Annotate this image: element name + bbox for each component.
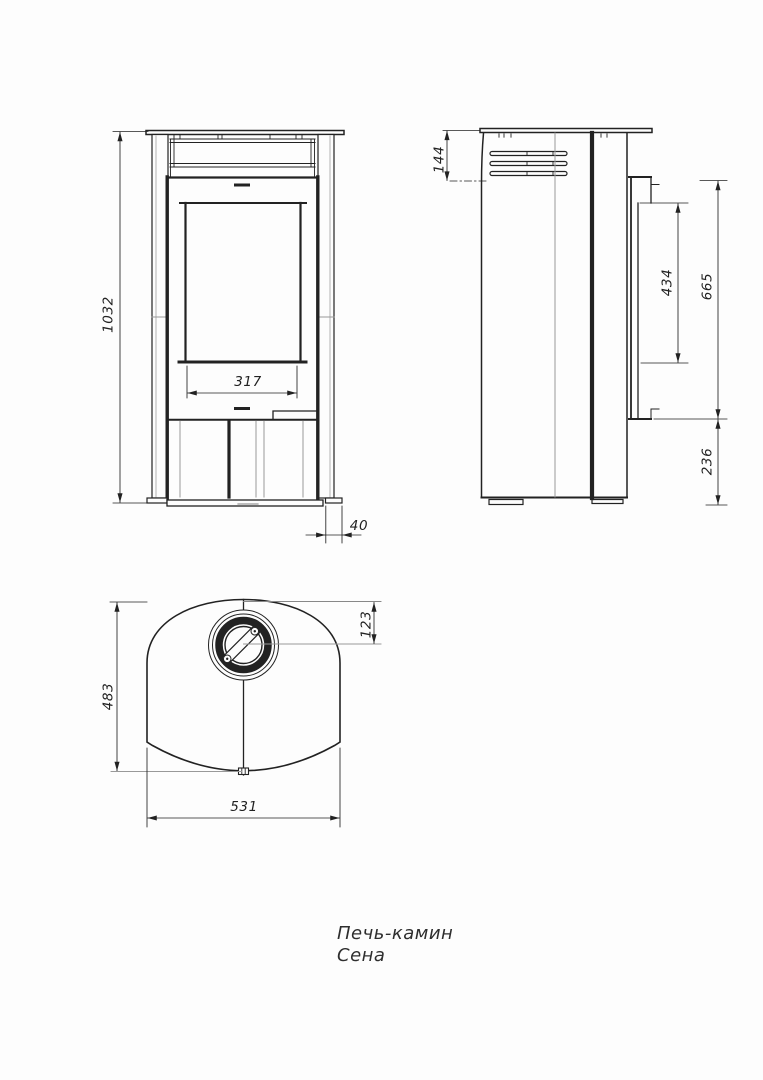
upper-handle-slot [234,184,250,187]
dim-glass-width-label: 317 [220,374,276,391]
dim-depth-label: 483 [101,669,118,725]
side-view [480,129,659,505]
drawing-title-model: Сена [337,945,453,967]
top-view [147,600,340,776]
dim-flue-offset-label: 123 [359,597,376,653]
dim-rear-shield-height-label: 434 [660,255,677,311]
wood-niche-panel [168,420,317,497]
flue-collar [209,610,279,680]
dim-overall-height-label: 1032 [101,287,118,343]
drawing-title-type: Печь-камин [337,923,453,945]
front-top-grille [170,139,315,177]
lower-handle-slot [234,407,250,410]
dim-width-label: 531 [216,799,272,816]
drawing-canvas [0,0,763,1080]
drawing-title: Печь-камин Сена [337,923,453,967]
front-view [146,131,344,507]
dim-top-plate-offset-label: 40 [331,518,387,535]
dim-rear-shield-top-label: 665 [700,259,717,315]
dim-top-vent-height-label: 144 [432,132,449,188]
side-view-dimensions [443,131,727,506]
technical-drawing-page: 1032 317 40 144 434 665 236 483 123 531 … [0,0,763,1080]
front-right-column [318,135,334,499]
dim-rear-shield-bottom-label: 236 [700,434,717,490]
front-base-plinth [167,500,323,506]
glass-window [179,203,306,362]
front-top-plate [146,131,344,135]
side-top-plate [480,129,652,133]
rear-heat-shield [629,177,659,419]
